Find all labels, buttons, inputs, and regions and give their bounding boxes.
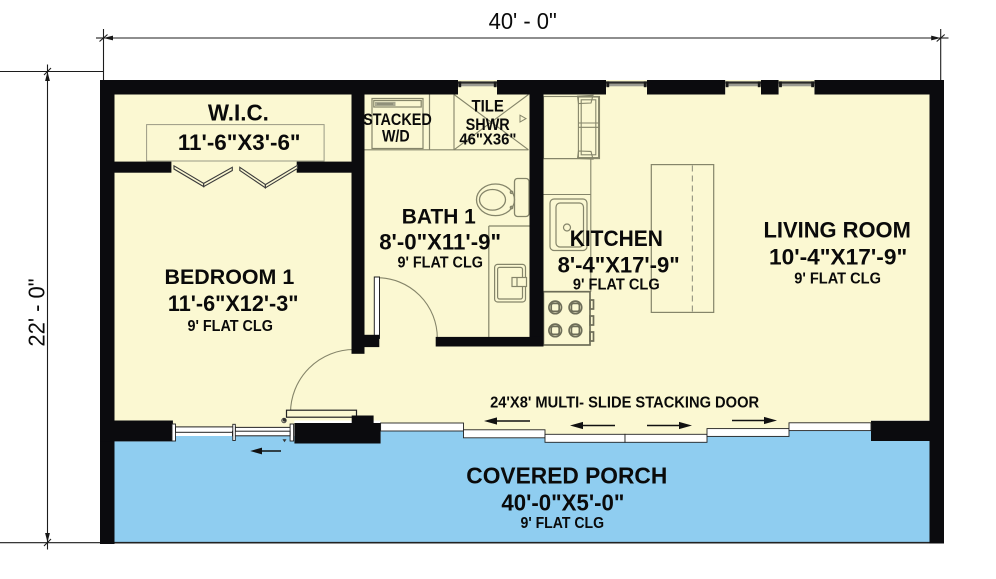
svg-text:BEDROOM 1: BEDROOM 1 <box>165 265 295 289</box>
svg-text:8'-4"X17'-9": 8'-4"X17'-9" <box>558 252 680 277</box>
svg-text:COVERED PORCH: COVERED PORCH <box>466 463 667 489</box>
svg-text:10'-4"X17'-9": 10'-4"X17'-9" <box>769 244 907 269</box>
svg-text:9' FLAT CLG: 9' FLAT CLG <box>794 270 881 287</box>
svg-text:11'-6"X12'-3": 11'-6"X12'-3" <box>168 291 299 316</box>
svg-text:W/D: W/D <box>382 126 410 145</box>
svg-text:9' FLAT CLG: 9' FLAT CLG <box>573 276 660 293</box>
svg-text:9' FLAT CLG: 9' FLAT CLG <box>397 255 483 272</box>
svg-text:W.I.C.: W.I.C. <box>208 100 269 126</box>
svg-text:8'-0"X11'-9": 8'-0"X11'-9" <box>379 230 501 255</box>
svg-text:9' FLAT CLG: 9' FLAT CLG <box>521 515 605 532</box>
svg-text:TILE: TILE <box>472 98 504 116</box>
svg-text:22' - 0": 22' - 0" <box>24 278 50 346</box>
svg-text:KITCHEN: KITCHEN <box>570 226 663 251</box>
svg-text:11'-6"X3'-6": 11'-6"X3'-6" <box>178 130 301 155</box>
svg-text:9' FLAT CLG: 9' FLAT CLG <box>188 318 273 335</box>
svg-text:24'X8' MULTI- SLIDE STACKING D: 24'X8' MULTI- SLIDE STACKING DOOR <box>490 395 759 412</box>
svg-text:BATH 1: BATH 1 <box>402 205 476 229</box>
svg-text:LIVING ROOM: LIVING ROOM <box>764 217 911 242</box>
svg-text:46"X36": 46"X36" <box>459 131 516 148</box>
svg-text:40'-0"X5'-0": 40'-0"X5'-0" <box>501 490 624 516</box>
svg-text:40' - 0": 40' - 0" <box>489 8 557 34</box>
